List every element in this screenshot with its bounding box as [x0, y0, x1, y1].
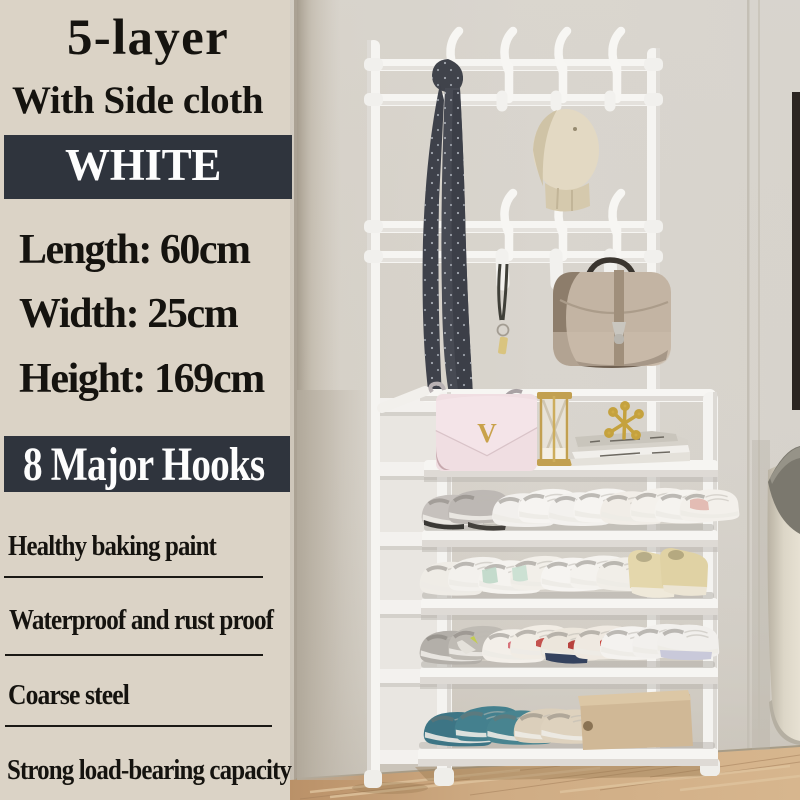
svg-text:V: V [477, 418, 497, 448]
